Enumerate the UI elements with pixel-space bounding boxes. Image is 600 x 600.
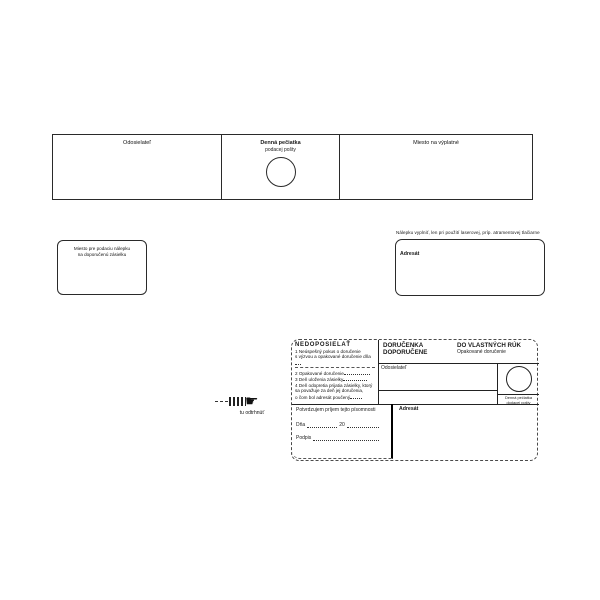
signature-row: Podpis <box>296 435 387 441</box>
dotted-leader <box>295 360 301 365</box>
nedoposielat-section: NEDOPOSIELAŤ 1 Neúspešný pokus o doručen… <box>292 340 379 404</box>
scanned-postal-form-page: Odosielateľ Denná pečiatka podacej pošty… <box>0 0 600 600</box>
ticket-subtitle-block: DO VLASTNÝCH RÚK Opakované doručenie <box>457 342 521 356</box>
nedoposielat-title: NEDOPOSIELAŤ <box>295 342 375 349</box>
dotted-leader <box>344 370 370 375</box>
confirmation-section: Potvrdzujem príjem tejto písomnosti Dňa … <box>292 404 393 459</box>
nedoposielat-item1-line2: s výzvou a opakované doručenie dňa <box>295 354 375 366</box>
nedoposielat-item4-line2: sa považuje za deň jej doručenia, <box>295 388 375 394</box>
date-fill-line <box>307 423 337 428</box>
ticket-sender-label: Odosielateľ <box>381 365 406 371</box>
stamp-label-line2: podacej pošty <box>222 147 339 153</box>
addressee-label: Adresát <box>400 251 419 257</box>
ticket-title-line2: DOPORUČENE <box>383 349 427 356</box>
date-label: Dňa <box>296 422 305 428</box>
ticket-right-subtitle: Opakované doručenie <box>457 349 521 355</box>
confirmation-statement: Potvrdzujem príjem tejto písomnosti <box>296 407 387 413</box>
pointing-hand-icon: ☛ <box>245 394 258 409</box>
top-strip: Odosielateľ Denná pečiatka podacej pošty… <box>52 134 533 200</box>
sender-label: Odosielateľ <box>53 140 221 146</box>
address-box-caption: Nálepku vyplniť, len pri použití laserov… <box>396 230 548 235</box>
registration-sticker-box: Miesto pre podaciu nálepku na doporučenú… <box>57 240 147 295</box>
postage-label: Miesto na výplatné <box>340 140 532 146</box>
dotted-leader <box>343 376 367 381</box>
dashed-separator <box>295 367 375 368</box>
ticket-addressee-label: Adresát <box>399 406 418 412</box>
signature-fill-line <box>313 436 379 441</box>
nedoposielat-item4-line3: o čom bol adresát poučený <box>295 394 375 401</box>
ticket-stamp-circle-icon <box>506 366 532 392</box>
ticket-title-line1: DORUČENKA <box>383 342 427 349</box>
ticket-right-title: DO VLASTNÝCH RÚK <box>457 342 521 349</box>
tear-marker-row: ☛ <box>215 392 289 410</box>
stamp-circle-icon <box>266 157 296 187</box>
ticket-header: DORUČENKA DOPORUČENE DO VLASTNÝCH RÚK Op… <box>379 340 539 363</box>
signature-label: Podpis <box>296 435 311 441</box>
ticket-sender-box: Odosielateľ <box>379 363 497 391</box>
date-row: Dňa 20 <box>296 422 387 428</box>
postage-cell: Miesto na výplatné <box>340 135 532 199</box>
tear-off-marker: ☛ tu odtrhnúť <box>215 392 289 416</box>
daily-stamp-cell: Denná pečiatka podacej pošty <box>222 135 340 199</box>
tear-stripe-sleeve <box>229 397 246 406</box>
tear-here-label: tu odtrhnúť <box>215 410 289 416</box>
sticker-box-line2: na doporučenú zásielku <box>58 252 146 258</box>
delivery-receipt-ticket: NEDOPOSIELAŤ 1 Neúspešný pokus o doručen… <box>291 339 538 461</box>
sender-cell: Odosielateľ <box>53 135 222 199</box>
addressee-box: Adresát <box>395 239 545 296</box>
year-fill-line <box>347 423 379 428</box>
dotted-leader <box>350 394 362 399</box>
tear-dashes <box>215 401 228 402</box>
year-prefix: 20 <box>339 422 345 428</box>
nedoposielat-item3: 3 Deň uloženia zásielky <box>295 376 375 383</box>
stamp-label-line1: Denná pečiatka <box>222 140 339 147</box>
ticket-stamp-cell: Denná pečiatka dodacej pošty <box>497 363 539 404</box>
ticket-title: DORUČENKA DOPORUČENE <box>383 342 427 357</box>
